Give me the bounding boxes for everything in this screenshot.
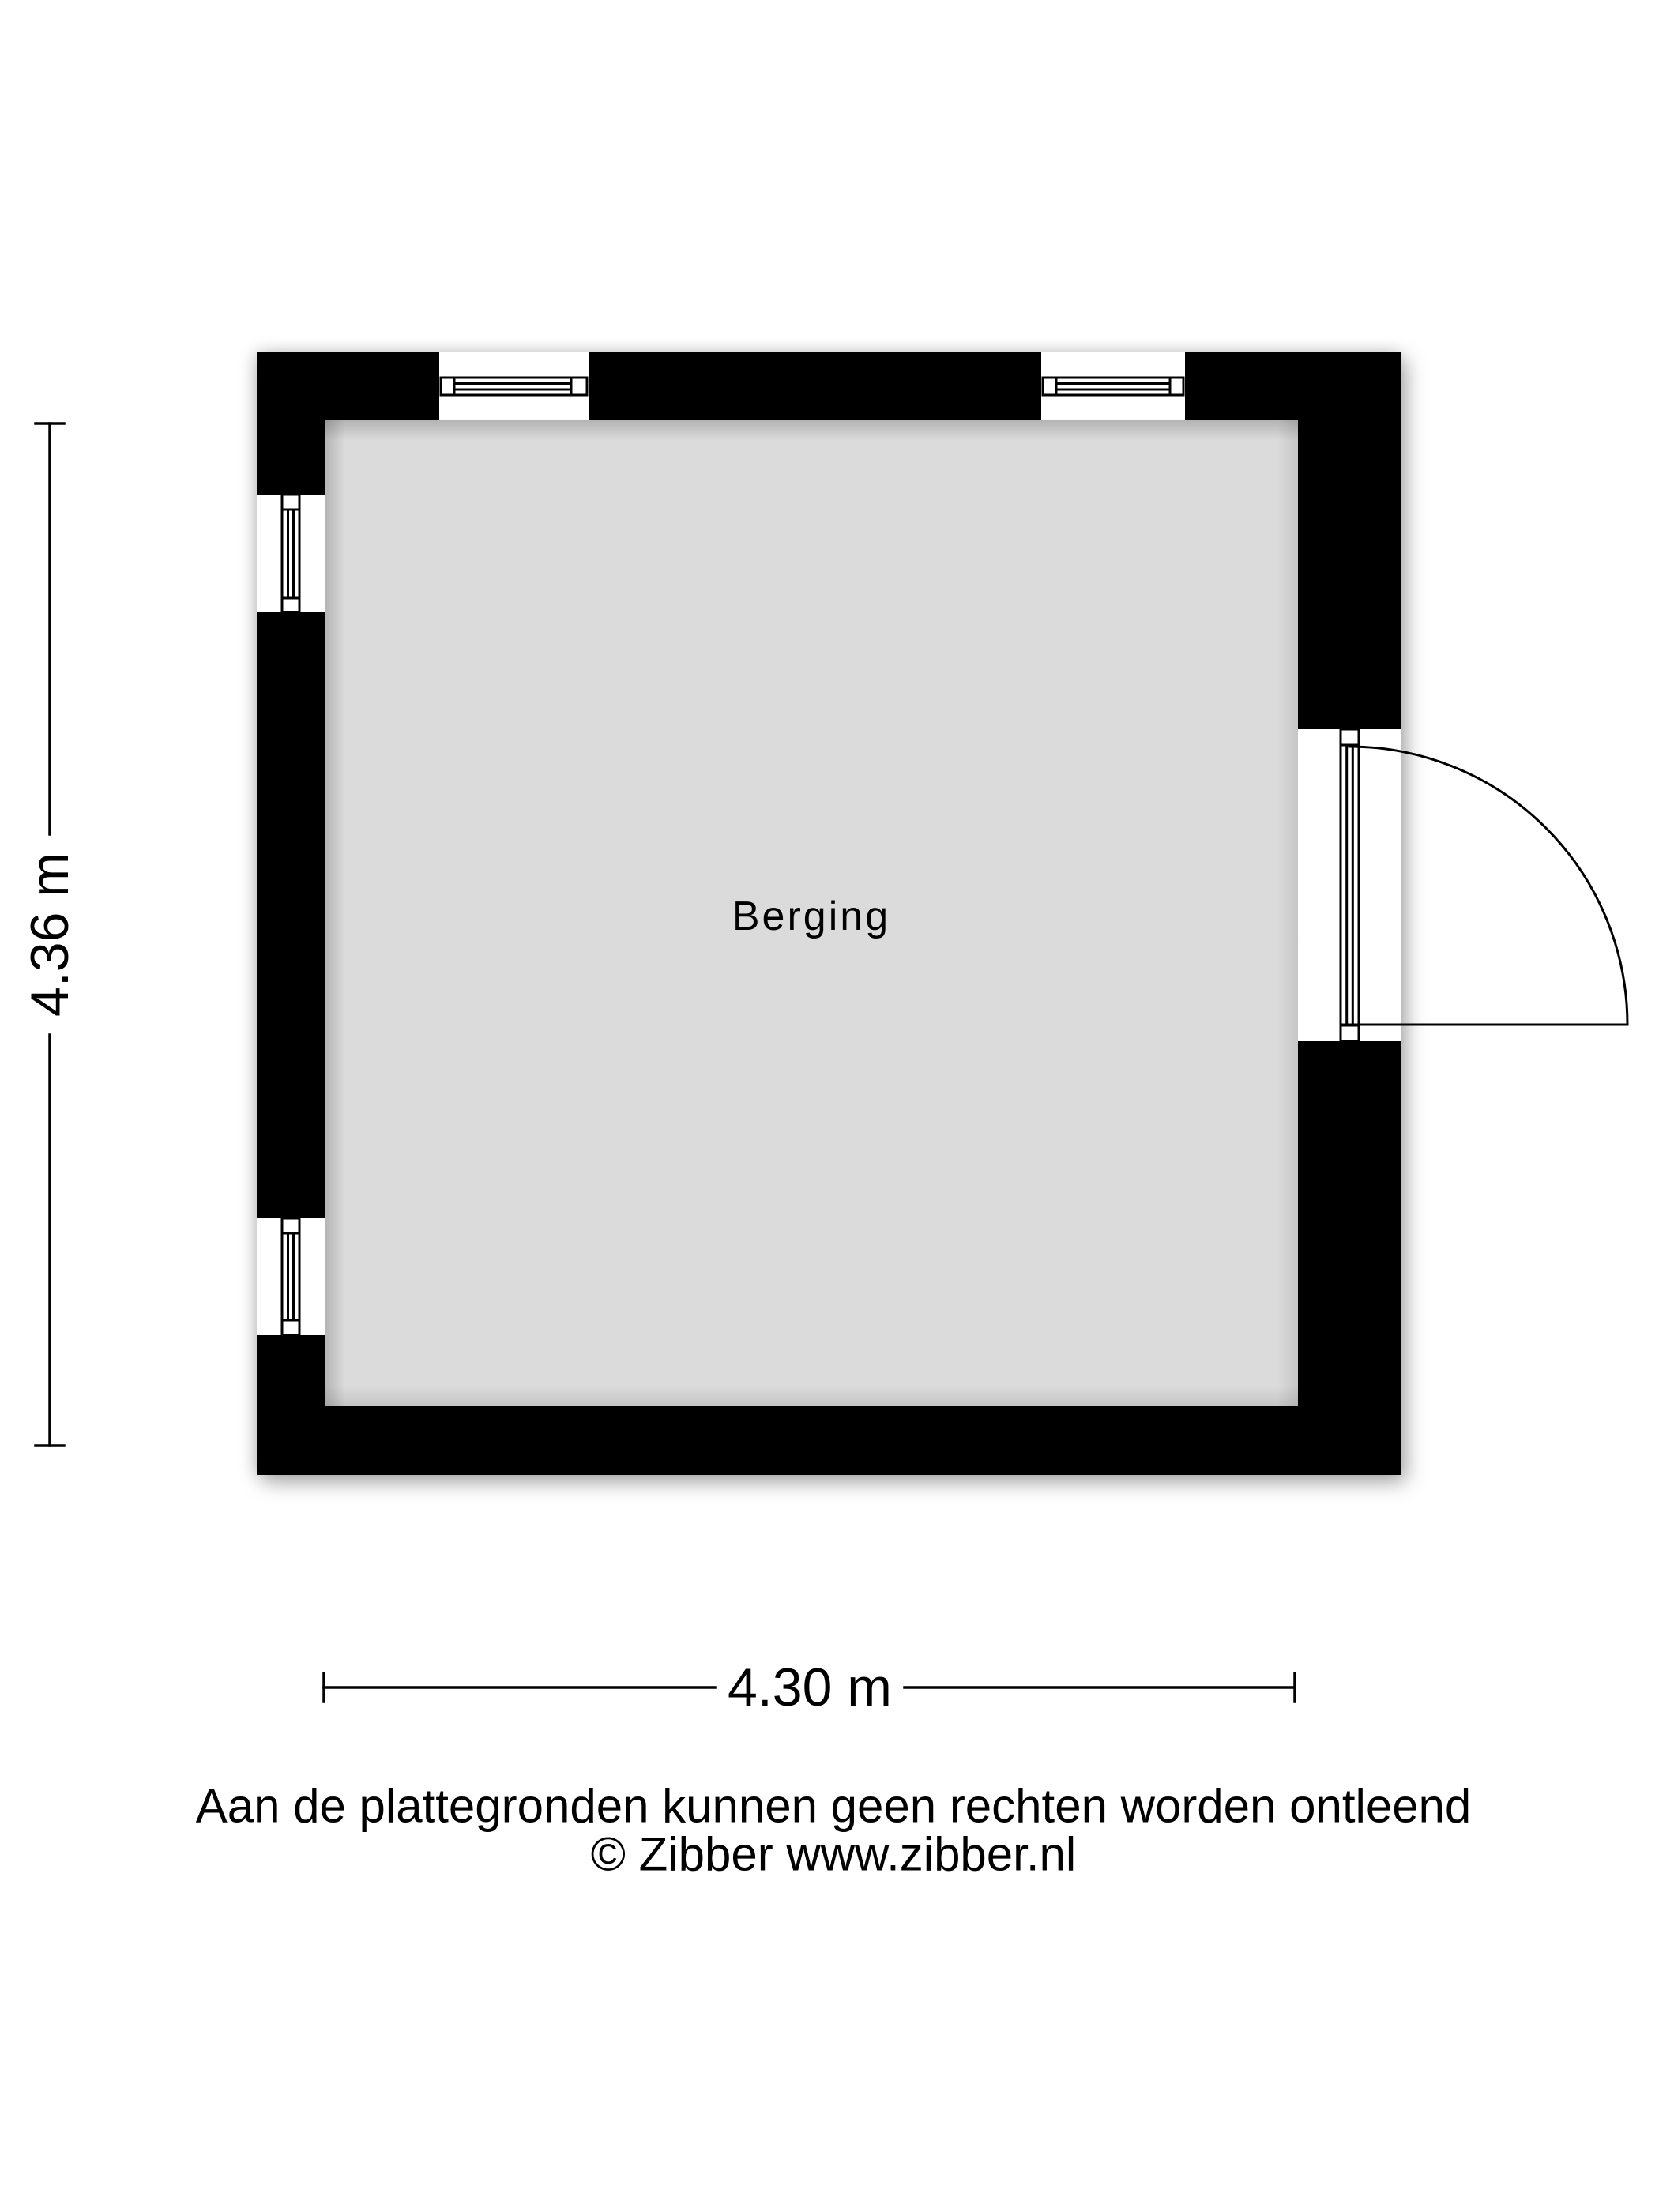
room-label: Berging [732,893,890,939]
window-left-lower [282,1218,299,1335]
disclaimer-text: Aan de plattegronden kunnen geen rechten… [196,1780,1472,1833]
copyright-text: © Zibber www.zibber.nl [591,1828,1076,1881]
inner-shadow-bottom [325,1386,1298,1406]
window-top-right [1043,378,1183,395]
dimension-label-width: 4.30 m [728,1657,892,1717]
floorplan-page: 4.36 m 4.30 m Berging Aan de plattegrond… [0,0,1659,2212]
door-panel [1341,729,1359,1041]
window-left-upper [282,495,299,612]
floorplan-canvas: 4.36 m 4.30 m Berging Aan de plattegrond… [0,0,1659,2212]
inner-shadow-top [325,420,1298,441]
inner-shadow-right [1277,420,1298,1406]
window-top-left [441,378,587,395]
dimension-label-height: 4.36 m [20,852,80,1017]
inner-shadow-left [325,420,345,1406]
